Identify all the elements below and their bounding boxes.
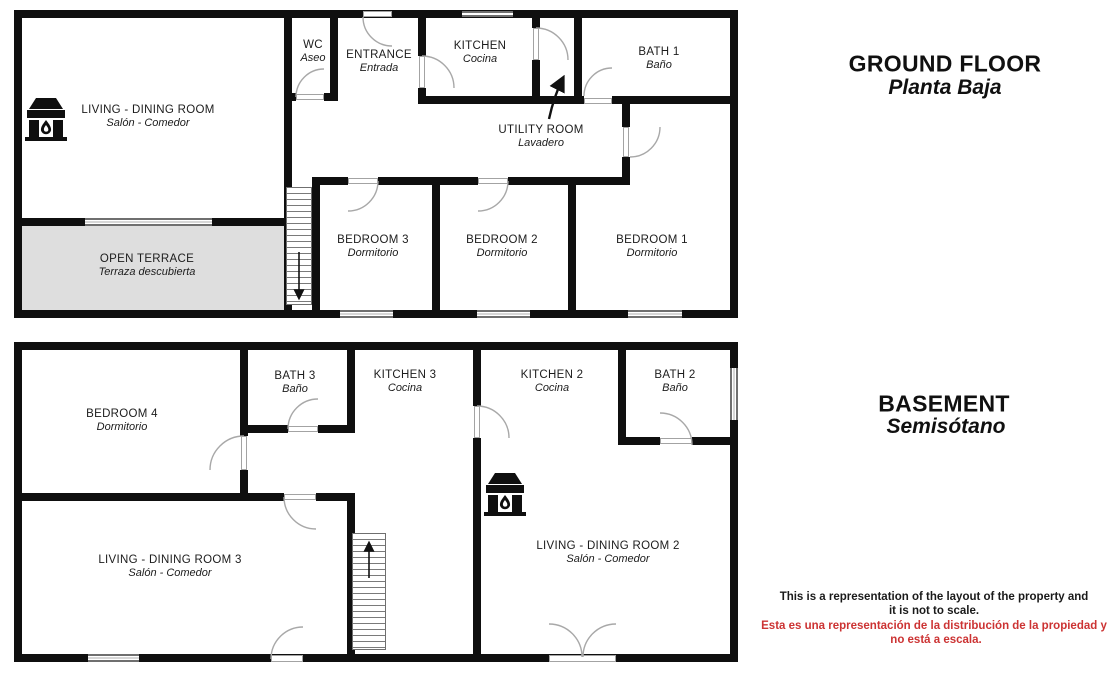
wall <box>284 93 296 101</box>
door <box>549 655 616 662</box>
stairs-up-icon <box>352 533 386 650</box>
room-label-bath1: BATH 1 <box>638 46 679 58</box>
disclaimer-en-line2: it is not to scale. <box>889 605 979 617</box>
room-label-entrance: ENTRANCE <box>346 49 412 61</box>
room-label-living2: LIVING - DINING ROOM 2 <box>536 540 679 552</box>
wall <box>324 93 332 101</box>
wall <box>14 10 22 318</box>
disclaimer-en-line1: This is a representation of the layout o… <box>780 591 1089 603</box>
window <box>340 310 393 318</box>
wall <box>532 18 540 28</box>
window <box>88 654 139 662</box>
room-sublabel-living-dining: Salón - Comedor <box>106 117 189 129</box>
floor-plan-canvas: LIVING - DINING ROOM Salón - Comedor WC … <box>0 0 1114 675</box>
wall <box>622 157 630 185</box>
door <box>623 127 629 157</box>
door <box>584 98 612 104</box>
room-sublabel-bedroom3: Dormitorio <box>348 247 399 259</box>
room-sublabel-kitchen: Cocina <box>463 53 497 65</box>
wall <box>318 425 355 433</box>
window <box>462 11 513 17</box>
room-sublabel-bath1: Baño <box>646 59 672 71</box>
basement-subheading: Semisótano <box>886 415 1005 439</box>
wall <box>418 96 584 104</box>
door <box>533 28 539 60</box>
wall <box>14 493 284 501</box>
wall <box>312 177 320 318</box>
wall <box>432 177 440 318</box>
room-sublabel-bedroom1: Dormitorio <box>627 247 678 259</box>
room-label-utility: UTILITY ROOM <box>498 124 583 136</box>
wall <box>473 438 481 654</box>
door <box>284 494 316 500</box>
wall <box>568 177 576 318</box>
wall <box>622 96 630 127</box>
ground-floor-subheading: Planta Baja <box>888 76 1001 100</box>
room-label-bedroom3: BEDROOM 3 <box>337 234 409 246</box>
room-sublabel-bedroom2: Dormitorio <box>477 247 528 259</box>
wall <box>532 60 540 104</box>
wall <box>330 10 338 101</box>
room-label-bath3: BATH 3 <box>274 370 315 382</box>
room-label-bath2: BATH 2 <box>654 369 695 381</box>
room-sublabel-kitchen3: Cocina <box>388 382 422 394</box>
room-sublabel-bath3: Baño <box>282 383 308 395</box>
wall <box>14 342 738 350</box>
window <box>477 310 530 318</box>
door <box>296 94 324 100</box>
room-sublabel-living2: Salón - Comedor <box>566 553 649 565</box>
room-sublabel-wc: Aseo <box>300 52 325 64</box>
door <box>271 655 303 662</box>
wall <box>730 10 738 318</box>
window <box>85 218 212 226</box>
wall <box>618 342 626 445</box>
room-label-bedroom2: BEDROOM 2 <box>466 234 538 246</box>
wall <box>612 96 738 104</box>
wall <box>240 342 248 436</box>
fireplace-icon <box>483 471 527 517</box>
door <box>660 438 692 444</box>
door <box>288 426 318 432</box>
door <box>474 406 480 438</box>
wall <box>574 18 582 104</box>
door <box>419 56 425 88</box>
room-sublabel-bath2: Baño <box>662 382 688 394</box>
basement-heading: BASEMENT <box>878 391 1009 418</box>
fireplace-icon <box>24 96 68 142</box>
room-sublabel-terrace: Terraza descubierta <box>99 266 196 278</box>
wall <box>347 342 355 425</box>
ground-floor-heading: GROUND FLOOR <box>849 51 1042 78</box>
room-sublabel-bedroom4: Dormitorio <box>97 421 148 433</box>
door <box>241 436 247 470</box>
door <box>363 11 392 17</box>
room-label-kitchen: KITCHEN <box>454 40 507 52</box>
room-label-living-dining: LIVING - DINING ROOM <box>81 104 214 116</box>
room-sublabel-utility: Lavadero <box>518 137 564 149</box>
window <box>628 310 682 318</box>
door <box>348 178 378 184</box>
wall <box>473 342 481 406</box>
room-label-bedroom1: BEDROOM 1 <box>616 234 688 246</box>
door <box>478 178 508 184</box>
window <box>730 368 738 420</box>
wall <box>14 342 22 662</box>
room-label-wc: WC <box>303 39 323 51</box>
room-label-kitchen3: KITCHEN 3 <box>374 369 437 381</box>
wall <box>692 437 738 445</box>
wall <box>240 425 288 433</box>
room-sublabel-entrance: Entrada <box>360 62 399 74</box>
room-label-kitchen2: KITCHEN 2 <box>521 369 584 381</box>
room-label-terrace: OPEN TERRACE <box>100 253 194 265</box>
disclaimer-es-line2: no está a escala. <box>890 634 981 646</box>
room-sublabel-living3: Salón - Comedor <box>128 567 211 579</box>
wall <box>378 177 478 185</box>
wall <box>618 437 660 445</box>
disclaimer-es-line1: Esta es una representación de la distrib… <box>761 620 1107 632</box>
room-sublabel-kitchen2: Cocina <box>535 382 569 394</box>
room-label-living3: LIVING - DINING ROOM 3 <box>98 554 241 566</box>
wall <box>418 10 426 56</box>
stairs-down-icon <box>286 187 312 305</box>
room-label-bedroom4: BEDROOM 4 <box>86 408 158 420</box>
